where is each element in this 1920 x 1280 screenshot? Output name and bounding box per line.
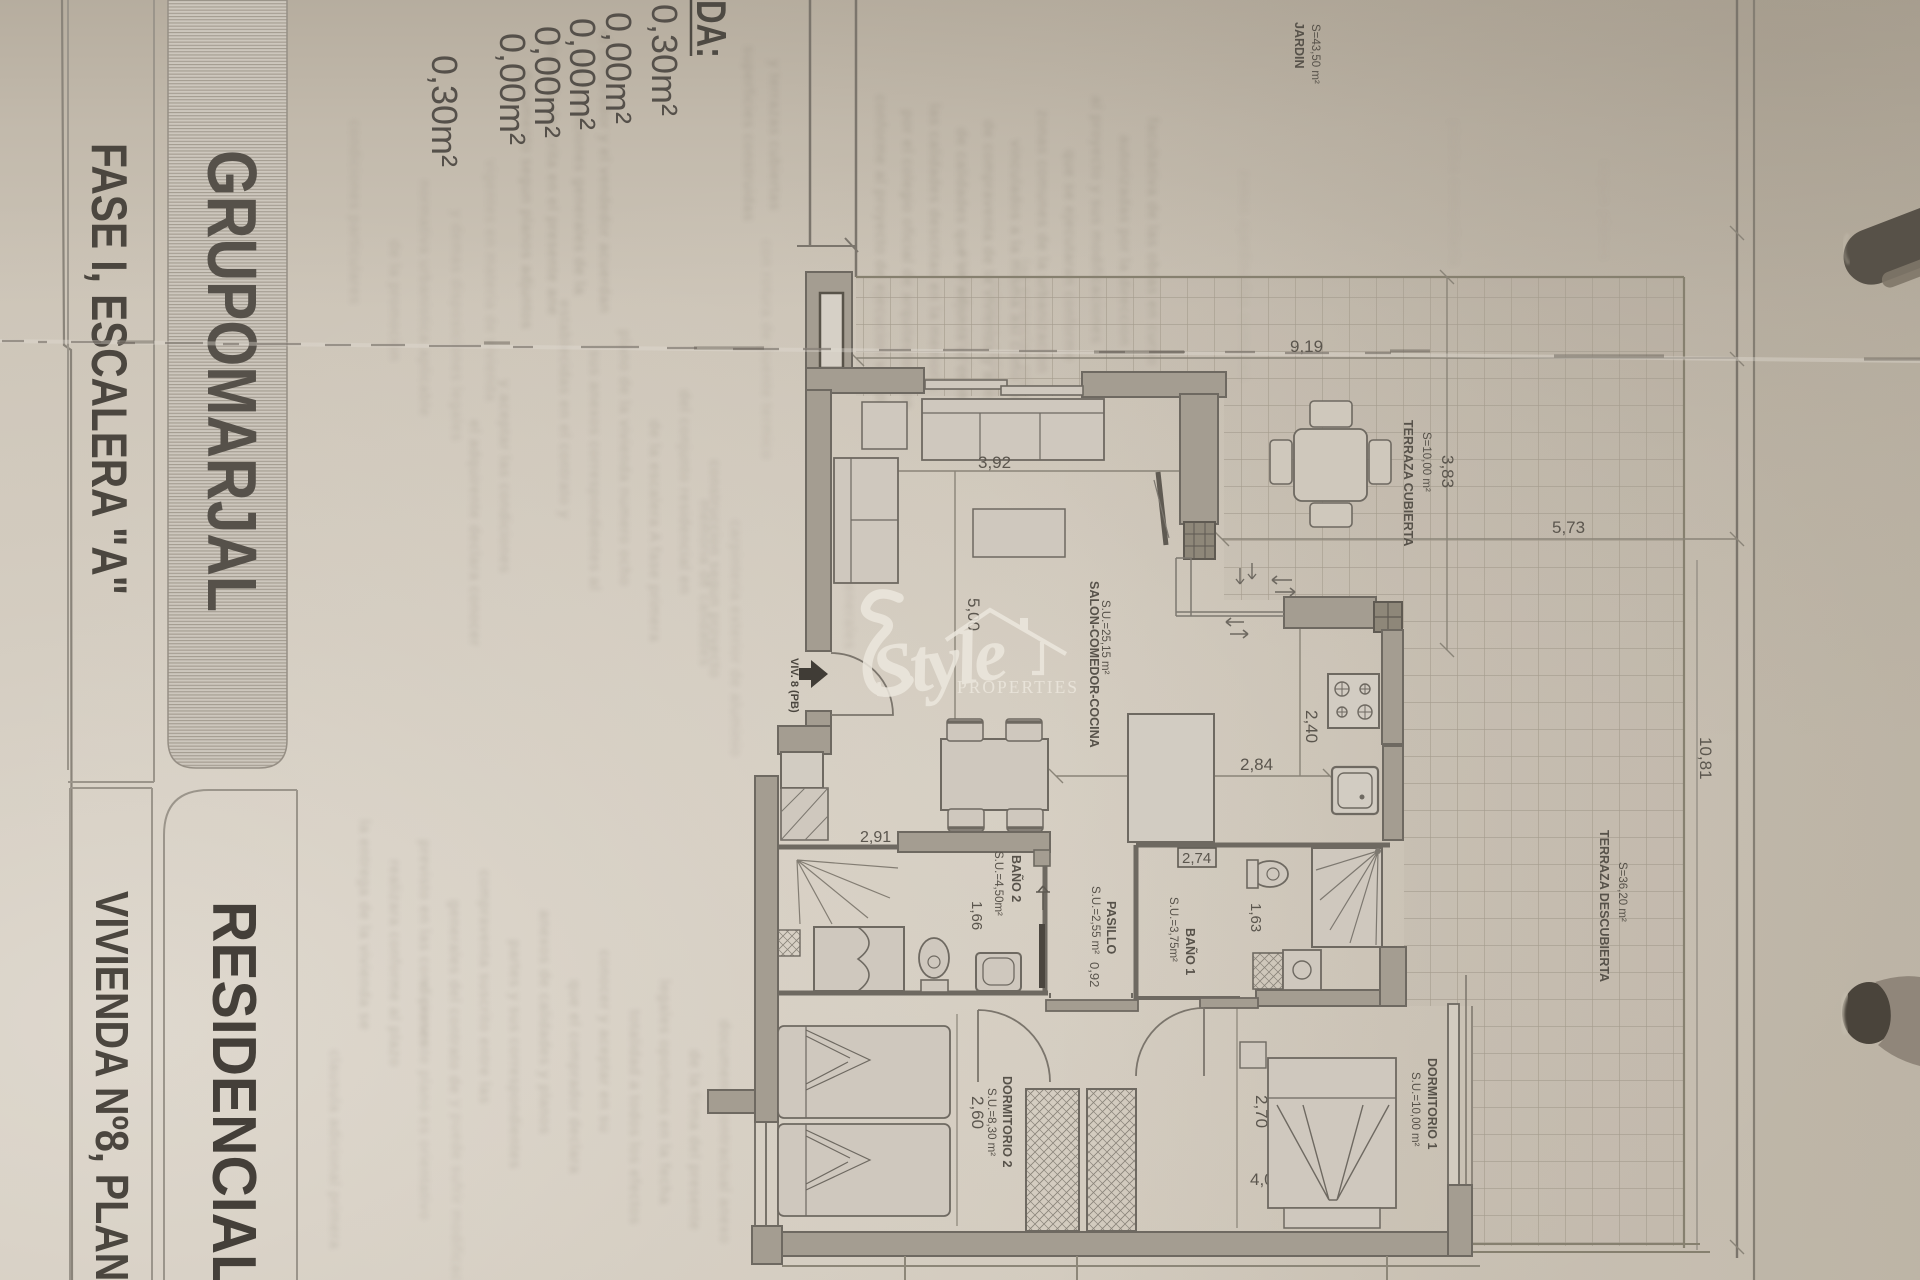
svg-text:5,73: 5,73 — [1552, 518, 1585, 537]
svg-text:S=43,50 m²: S=43,50 m² — [1309, 24, 1321, 84]
svg-text:10,81: 10,81 — [1696, 737, 1715, 780]
svg-text:segun planos: segun planos — [1596, 160, 1613, 261]
svg-text:y terrazas cubiertas: y terrazas cubiertas — [766, 60, 783, 211]
svg-text:partes y sus correspondientes: partes y sus correspondientes — [506, 940, 523, 1169]
svg-text:el presente plano es orientati: el presente plano es orientativo — [416, 980, 433, 1220]
svg-text:SALON-COMEDOR-COCINA: SALON-COMEDOR-COCINA — [1087, 581, 1101, 748]
svg-text:normativa urbanistica aplicabl: normativa urbanistica aplicable — [416, 180, 433, 417]
svg-text:3,83: 3,83 — [1438, 455, 1457, 488]
svg-text:anexos de calidades y planos: anexos de calidades y planos — [536, 910, 553, 1135]
svg-text:3,92: 3,92 — [978, 453, 1011, 472]
svg-text:el adquirente declara conocer: el adquirente declara conocer — [466, 420, 483, 647]
svg-text:de la firma del presente: de la firma del presente — [686, 1050, 703, 1231]
svg-text:vigentes en materia de viviend: vigentes en materia de vivienda — [482, 160, 499, 402]
svg-text:2,60: 2,60 — [968, 1096, 987, 1129]
svg-text:S=10,00 m²: S=10,00 m² — [1420, 432, 1432, 492]
svg-text:carpinteria exterior de alumin: carpinteria exterior de aluminio — [727, 520, 744, 757]
svg-text:BAÑO 2: BAÑO 2 — [1009, 855, 1024, 902]
svg-text:la entrega de la vivienda se: la entrega de la vivienda se — [356, 820, 373, 1031]
svg-text:PASILLO: PASILLO — [1104, 901, 1118, 955]
svg-text:S=36,20 m²: S=36,20 m² — [1616, 862, 1628, 922]
svg-text:S.U.=4,50m²: S.U.=4,50m² — [992, 851, 1004, 916]
svg-text:del conjunto residencial en: del conjunto residencial en — [676, 390, 693, 595]
svg-text:S.U.=8,30 m²: S.U.=8,30 m² — [985, 1088, 997, 1156]
svg-text:conocer y aceptar en su: conocer y aceptar en su — [596, 950, 613, 1133]
svg-text:memoria de calidades: memoria de calidades — [696, 500, 713, 667]
svg-text:y puede sufrir modificaciones: y puede sufrir modificaciones — [448, 1100, 465, 1280]
svg-text:S.U.=3,75m²: S.U.=3,75m² — [1167, 897, 1179, 962]
svg-text:0,30m²: 0,30m² — [424, 55, 465, 167]
svg-text:condiciones particulares: condiciones particulares — [346, 120, 363, 305]
svg-text:S.U.=25,15 m²: S.U.=25,15 m² — [1099, 600, 1111, 675]
svg-text:TERRAZA DESCUBIERTA: TERRAZA DESCUBIERTA — [1597, 830, 1611, 982]
svg-text:clausula adicional primera: clausula adicional primera — [326, 1050, 343, 1249]
svg-text:totalidad a todos los efectos: totalidad a todos los efectos — [626, 1010, 643, 1225]
svg-text:0,30m²: 0,30m² — [644, 4, 685, 116]
svg-text:2,84: 2,84 — [1240, 755, 1273, 774]
svg-text:PROPERTIES: PROPERTIES — [957, 677, 1079, 697]
svg-text:2,74: 2,74 — [1182, 850, 1211, 867]
svg-text:2,40: 2,40 — [1302, 710, 1321, 743]
svg-text:que el comprador declara: que el comprador declara — [566, 980, 583, 1174]
svg-text:0,00m²: 0,00m² — [492, 33, 533, 145]
svg-text:DORMITORIO 2: DORMITORIO 2 — [1000, 1076, 1014, 1167]
svg-text:y aceptar las condiciones: y aceptar las condiciones — [496, 380, 513, 573]
svg-text:VIV. 8 (PB): VIV. 8 (PB) — [788, 658, 800, 713]
svg-text:RESIDENCIAL: RESIDENCIAL — [199, 901, 268, 1280]
svg-text:DORMITORIO 1: DORMITORIO 1 — [1425, 1058, 1439, 1149]
svg-text:y demas disposiciones legales: y demas disposiciones legales — [448, 210, 465, 442]
svg-text:compraventa suscrito entre las: compraventa suscrito entre las — [476, 870, 493, 1104]
svg-text:0,00m²: 0,00m² — [598, 12, 639, 124]
svg-text:DA:: DA: — [688, 0, 735, 58]
svg-text:0,92: 0,92 — [1087, 962, 1102, 987]
svg-text:establecidas en el contrato y: establecidas en el contrato y — [556, 300, 573, 519]
svg-text:superficies construidas: superficies construidas — [740, 46, 757, 222]
svg-text:S.U.=2,55 m²: S.U.=2,55 m² — [1089, 886, 1101, 954]
svg-text:TERRAZA CUBIERTA: TERRAZA CUBIERTA — [1401, 420, 1415, 546]
svg-text:sus anexos correspondientes al: sus anexos correspondientes al — [586, 350, 603, 591]
svg-text:S.U.=10,00 m²: S.U.=10,00 m² — [1409, 1072, 1421, 1147]
svg-text:FASE I, ESCALERA "A": FASE I, ESCALERA "A" — [81, 143, 137, 595]
svg-text:BAÑO 1: BAÑO 1 — [1183, 928, 1198, 975]
svg-text:2,91: 2,91 — [860, 829, 891, 846]
svg-text:legales oportunos en la fecha: legales oportunos en la fecha — [656, 980, 673, 1205]
svg-text:1,66: 1,66 — [968, 901, 985, 930]
svg-text:piscina comunitaria: piscina comunitaria — [1446, 120, 1463, 267]
svg-text:1,63: 1,63 — [1247, 903, 1264, 932]
svg-text:plano de la vivienda numero oc: plano de la vivienda numero ocho — [616, 330, 633, 586]
svg-text:documento contractual anexo: documento contractual anexo — [716, 1020, 733, 1244]
svg-text:de la escalera A fase primera: de la escalera A fase primera — [646, 420, 663, 642]
svg-text:generales del contrato de: generales del contrato de — [446, 900, 463, 1094]
svg-text:VIVIENDA Nº8, PLANTA: VIVIENDA Nº8, PLANTA — [86, 891, 138, 1280]
svg-text:JARDIN: JARDIN — [1292, 22, 1306, 69]
svg-text:realizara conforme al plazo: realizara conforme al plazo — [386, 860, 403, 1067]
svg-text:GRUPOMARJAL: GRUPOMARJAL — [193, 150, 271, 612]
